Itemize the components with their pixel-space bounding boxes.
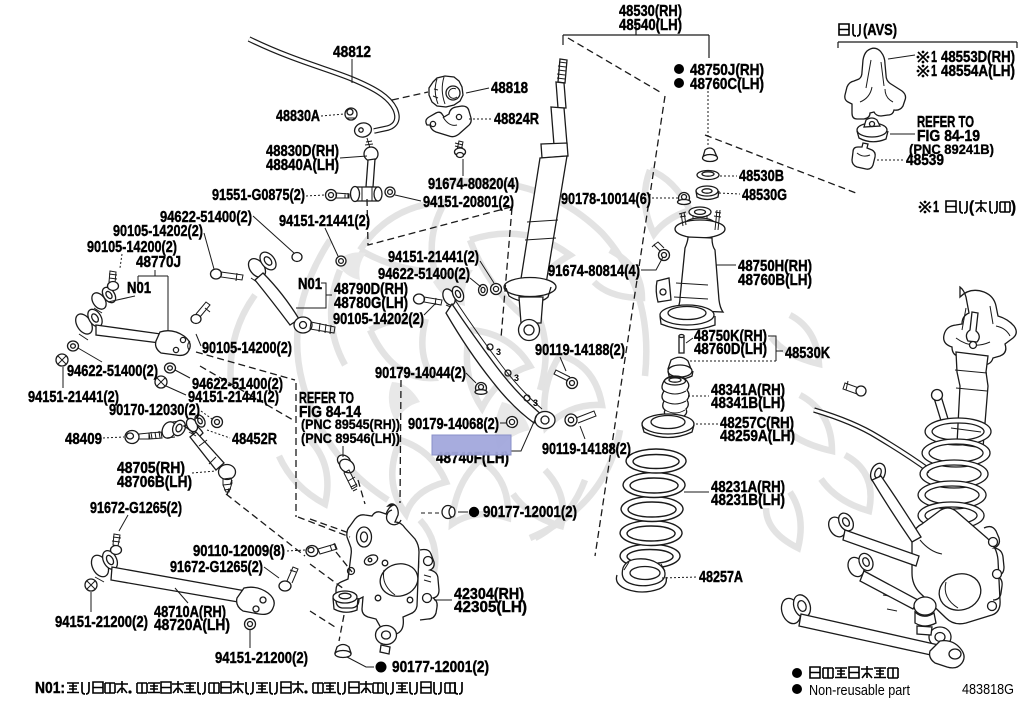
svg-text:42305(LH): 42305(LH) xyxy=(454,599,527,616)
svg-text:90105-14202(2): 90105-14202(2) xyxy=(113,223,203,240)
svg-text:): ) xyxy=(1011,199,1016,216)
svg-text:48452R: 48452R xyxy=(232,431,277,448)
svg-text:48780G(LH): 48780G(LH) xyxy=(334,295,408,312)
svg-text:3: 3 xyxy=(496,347,501,357)
svg-text:90177-12001(2): 90177-12001(2) xyxy=(392,659,489,676)
svg-text:48554A(LH): 48554A(LH) xyxy=(941,63,1015,80)
svg-text:48257A: 48257A xyxy=(699,569,743,586)
svg-text:94151-21441(2): 94151-21441(2) xyxy=(388,249,479,266)
svg-text:90170-12030(2): 90170-12030(2) xyxy=(109,402,200,419)
svg-text:3: 3 xyxy=(514,373,519,383)
svg-text:(: ( xyxy=(969,199,975,216)
svg-text:91672-G1265(2): 91672-G1265(2) xyxy=(170,559,263,576)
svg-text:48760C(LH): 48760C(LH) xyxy=(690,76,764,93)
svg-text:48706B(LH): 48706B(LH) xyxy=(117,474,192,491)
svg-text:48840A(LH): 48840A(LH) xyxy=(266,157,339,174)
svg-text:90179-14044(2): 90179-14044(2) xyxy=(375,365,466,382)
svg-text:48812: 48812 xyxy=(333,44,371,61)
svg-text:91674-80820(4): 91674-80820(4) xyxy=(428,176,519,193)
svg-text:48530B: 48530B xyxy=(739,168,784,185)
svg-text:90178-10014(6): 90178-10014(6) xyxy=(561,191,651,208)
svg-text:48540(LH): 48540(LH) xyxy=(619,17,682,34)
svg-text:90105-14202(2): 90105-14202(2) xyxy=(333,311,424,328)
svg-text:48530K: 48530K xyxy=(785,345,830,362)
svg-text:90110-12009(8): 90110-12009(8) xyxy=(193,543,285,560)
svg-text:N01: N01 xyxy=(127,280,151,297)
svg-text:94151-21200(2): 94151-21200(2) xyxy=(215,650,308,667)
svg-text:3: 3 xyxy=(533,398,538,408)
svg-text:N01: N01 xyxy=(298,276,322,293)
svg-text:91674-80814(4): 91674-80814(4) xyxy=(548,263,640,280)
svg-text:48760B(LH): 48760B(LH) xyxy=(738,272,812,289)
svg-text:91551-G0875(2): 91551-G0875(2) xyxy=(212,187,305,204)
svg-text:94622-51400(2): 94622-51400(2) xyxy=(67,363,158,380)
svg-text:90179-14068(2): 90179-14068(2) xyxy=(408,416,499,433)
svg-text:48409: 48409 xyxy=(65,431,102,448)
svg-text:(AVS): (AVS) xyxy=(863,22,897,39)
svg-text:Non-reusable part: Non-reusable part xyxy=(809,682,911,699)
svg-text:94622-51400(2): 94622-51400(2) xyxy=(378,266,470,283)
svg-text:48770J: 48770J xyxy=(136,254,181,271)
svg-text:48231B(LH): 48231B(LH) xyxy=(711,492,785,509)
svg-text:N01:: N01: xyxy=(35,680,65,697)
svg-text:1: 1 xyxy=(933,199,939,216)
svg-text:48830A: 48830A xyxy=(276,108,320,125)
svg-text:94151-21441(2): 94151-21441(2) xyxy=(188,389,279,406)
svg-text:90105-14200(2): 90105-14200(2) xyxy=(202,340,292,357)
svg-text:90177-12001(2): 90177-12001(2) xyxy=(483,504,577,521)
svg-text:94151-21441(2): 94151-21441(2) xyxy=(279,213,370,230)
svg-text:90119-14188(2): 90119-14188(2) xyxy=(542,441,631,458)
svg-text:48818: 48818 xyxy=(491,80,528,97)
svg-text:48259A(LH): 48259A(LH) xyxy=(720,428,795,445)
svg-text:91672-G1265(2): 91672-G1265(2) xyxy=(90,500,182,517)
svg-text:48720A(LH): 48720A(LH) xyxy=(154,617,230,634)
svg-text:90119-14188(2): 90119-14188(2) xyxy=(535,342,625,359)
svg-text:94151-21200(2): 94151-21200(2) xyxy=(55,614,148,631)
svg-text:48530G: 48530G xyxy=(742,187,787,204)
svg-text:48539: 48539 xyxy=(906,152,944,169)
svg-text:94151-21441(2): 94151-21441(2) xyxy=(28,389,119,406)
svg-text:(PNC 89546(LH)): (PNC 89546(LH)) xyxy=(301,430,400,446)
svg-text:48760D(LH): 48760D(LH) xyxy=(694,341,767,358)
svg-text:483818G: 483818G xyxy=(962,681,1014,698)
svg-text:48341B(LH): 48341B(LH) xyxy=(711,395,785,412)
svg-text:94151-20801(2): 94151-20801(2) xyxy=(423,194,514,211)
svg-text:1: 1 xyxy=(931,63,937,80)
svg-text:48824R: 48824R xyxy=(494,111,539,128)
